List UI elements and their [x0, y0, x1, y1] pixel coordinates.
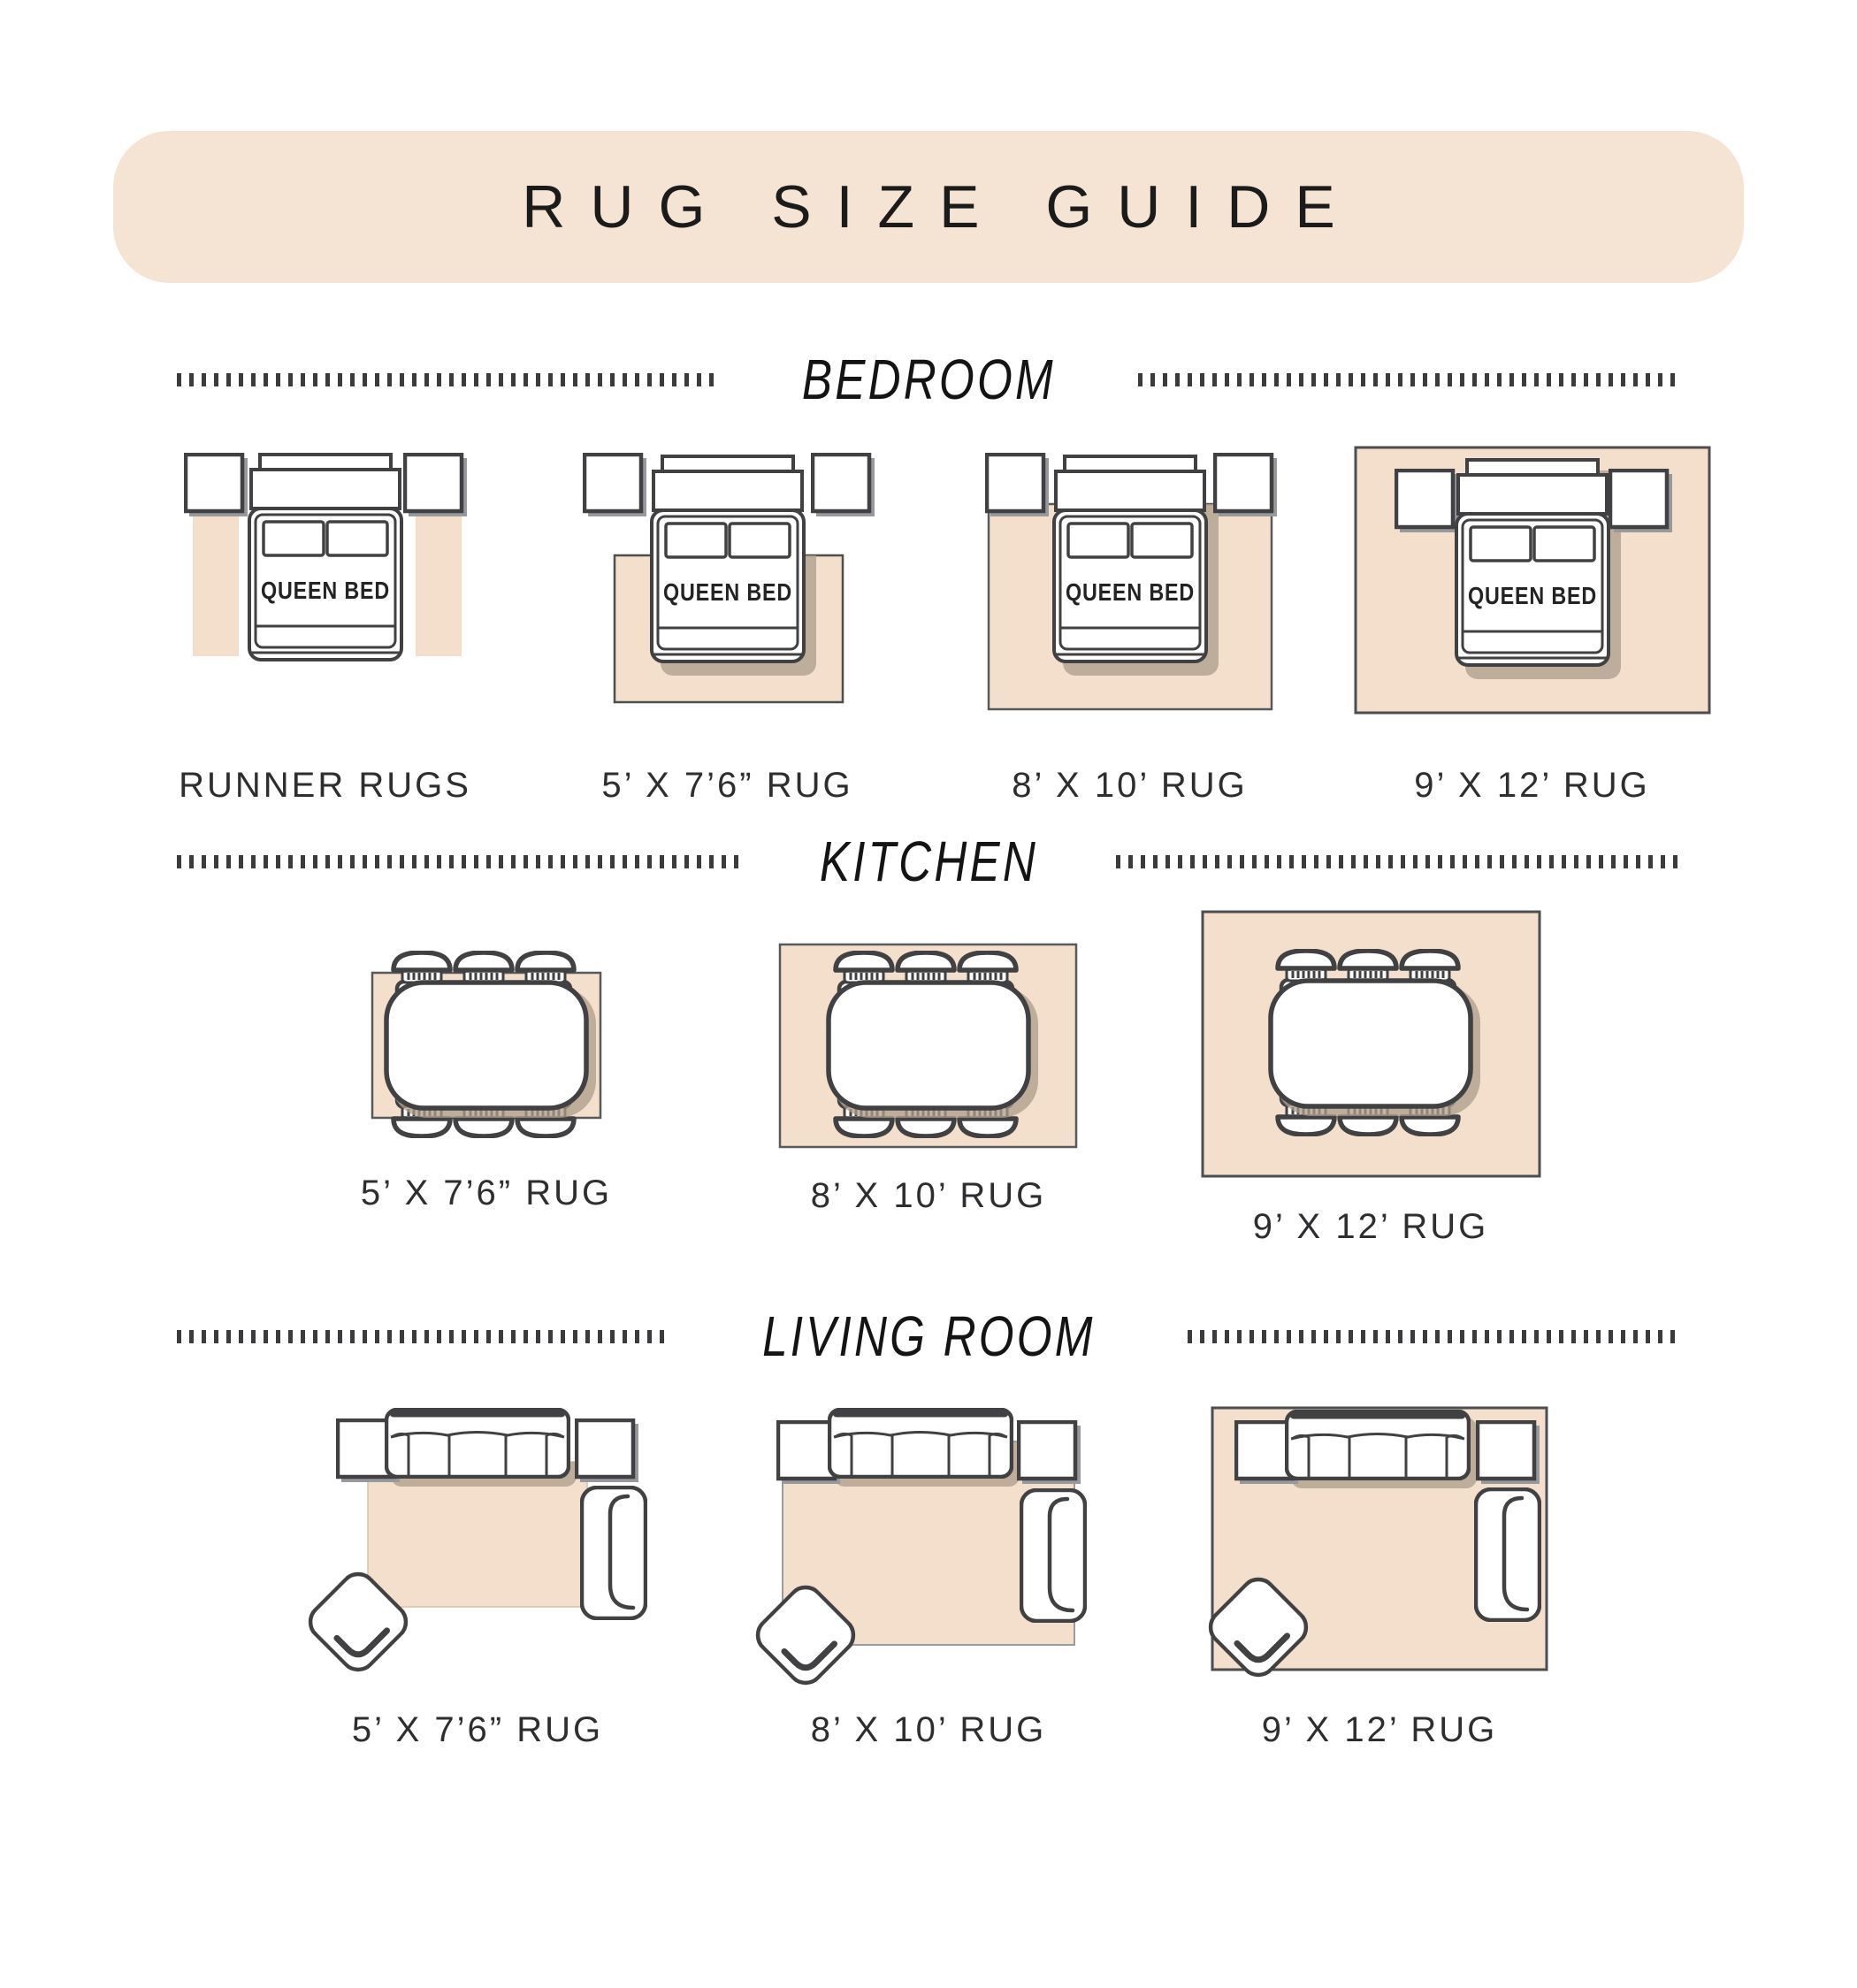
- side-table-icon: [1478, 1422, 1540, 1484]
- chaise-icon: [1476, 1489, 1540, 1620]
- dining-table-icon: [386, 983, 586, 1108]
- living-room-row: 5’ X 7’6” RUG 8’ X 10’ RUG: [0, 1399, 1857, 1750]
- dotted-rule: [1138, 373, 1680, 386]
- rug-size-label: RUNNER RUGS: [179, 766, 471, 806]
- rug-size-label: 9’ X 12’ RUG: [1253, 1207, 1488, 1247]
- diagram-living-5x76: 5’ X 7’6” RUG: [261, 1399, 694, 1750]
- rug-size-label: 8’ X 10’ RUG: [811, 1710, 1046, 1750]
- sofa-icon: [386, 1410, 569, 1477]
- section-header-bedroom: BEDROOM: [177, 347, 1680, 412]
- diagram-living-9x12: 9’ X 12’ RUG: [1163, 1399, 1596, 1750]
- queen-bed-icon: [249, 455, 401, 660]
- rug-size-label: 5’ X 7’6” RUG: [361, 1174, 612, 1213]
- nightstand-icon: [1215, 455, 1277, 516]
- rug-size-label: 5’ X 7’6” RUG: [352, 1710, 603, 1750]
- queen-bed-icon: [1054, 456, 1206, 661]
- diagram-bedroom-9x12: 9’ X 12’ RUG: [1338, 444, 1727, 806]
- dotted-rule: [1188, 1330, 1680, 1343]
- rug-size-label: 8’ X 10’ RUG: [1012, 766, 1247, 806]
- queen-bed-icon: [652, 456, 804, 661]
- sofa-icon: [1287, 1411, 1469, 1479]
- queen-bed-icon: [1456, 460, 1609, 665]
- section-title-kitchen: KITCHEN: [819, 829, 1037, 894]
- dotted-rule: [177, 373, 719, 386]
- diagram-bedroom-8x10: 8’ X 10’ RUG: [936, 444, 1325, 806]
- diagram-kitchen-8x10: 8’ X 10’ RUG: [721, 941, 1136, 1216]
- side-table-icon: [1019, 1422, 1081, 1484]
- diagram-living-8x10: 8’ X 10’ RUG: [712, 1399, 1145, 1750]
- dotted-rule: [177, 1330, 669, 1343]
- side-table-icon: [577, 1420, 638, 1482]
- nightstand-icon: [987, 455, 1049, 516]
- dotted-rule: [1116, 855, 1680, 868]
- chaise-icon: [1021, 1490, 1085, 1621]
- runner-rug-right: [416, 504, 462, 656]
- nightstand-icon: [186, 455, 248, 516]
- diagram-kitchen-9x12: 9’ X 12’ RUG: [1163, 910, 1578, 1247]
- nightstand-icon: [1610, 470, 1672, 532]
- diagram-bedroom-runner: RUNNER RUGS: [131, 444, 520, 806]
- dotted-rule: [177, 855, 741, 868]
- sofa-icon: [829, 1410, 1012, 1477]
- chaise-icon: [582, 1487, 646, 1618]
- nightstand-icon: [1396, 470, 1458, 532]
- bedroom-row: RUNNER RUGS 5’ X 7’6” RUG 8’ X 10’ R: [0, 444, 1857, 806]
- title-banner: RUG SIZE GUIDE: [113, 131, 1744, 283]
- rug-size-label: 9’ X 12’ RUG: [1414, 766, 1649, 806]
- section-header-kitchen: KITCHEN: [177, 829, 1680, 894]
- diagram-bedroom-5x76: 5’ X 7’6” RUG: [533, 444, 922, 806]
- section-header-living-room: LIVING ROOM: [177, 1304, 1680, 1369]
- rug-size-label: 9’ X 12’ RUG: [1262, 1710, 1497, 1750]
- rug-size-label: 8’ X 10’ RUG: [811, 1176, 1046, 1216]
- dining-table-icon: [829, 983, 1028, 1108]
- nightstand-icon: [813, 455, 875, 516]
- dining-table-icon: [1271, 981, 1471, 1106]
- section-title-living-room: LIVING ROOM: [762, 1304, 1096, 1369]
- nightstand-icon: [585, 455, 646, 516]
- rug-size-label: 5’ X 7’6” RUG: [601, 766, 852, 806]
- nightstand-icon: [405, 455, 467, 516]
- page-title: RUG SIZE GUIDE: [497, 172, 1359, 241]
- kitchen-row: 5’ X 7’6” RUG 8’ X 10’ RUG: [0, 910, 1857, 1247]
- runner-rug-left: [193, 504, 239, 656]
- section-title-bedroom: BEDROOM: [802, 347, 1056, 412]
- diagram-kitchen-5x76: 5’ X 7’6” RUG: [279, 944, 694, 1213]
